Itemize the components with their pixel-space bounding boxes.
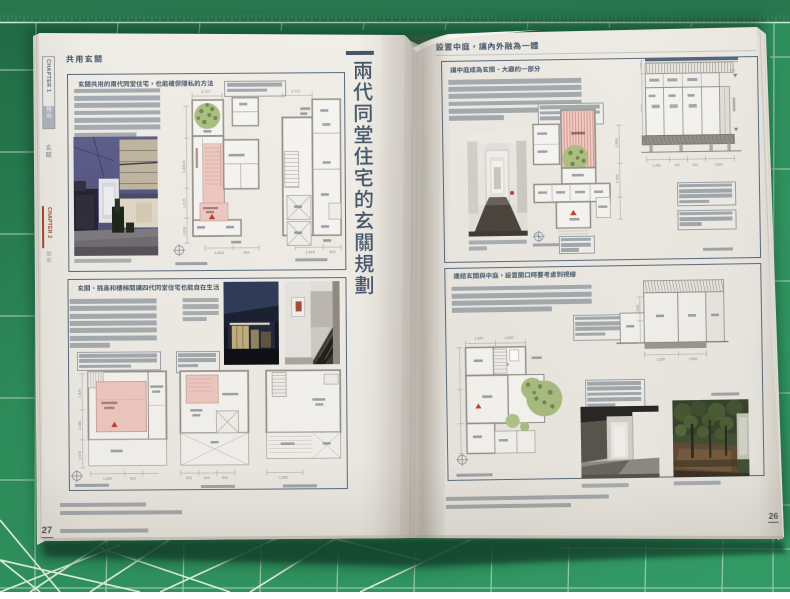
svg-text:1,265: 1,265 (653, 164, 661, 168)
svg-text:2,830: 2,830 (615, 138, 619, 147)
svg-text:1,820: 1,820 (474, 336, 483, 340)
svg-text:1,910: 1,910 (615, 174, 619, 183)
svg-text:1FL: 1FL (730, 68, 736, 72)
svg-text:1,820: 1,820 (689, 357, 698, 361)
svg-text:1,820: 1,820 (715, 163, 723, 167)
svg-text:4,650: 4,650 (640, 104, 643, 112)
svg-text:1,820: 1,820 (504, 336, 513, 340)
svg-text:910: 910 (675, 163, 681, 167)
svg-text:1,192: 1,192 (640, 62, 642, 70)
svg-text:1,820: 1,820 (657, 358, 666, 362)
svg-text:910: 910 (693, 163, 699, 167)
svg-text:2,340: 2,340 (636, 305, 640, 313)
